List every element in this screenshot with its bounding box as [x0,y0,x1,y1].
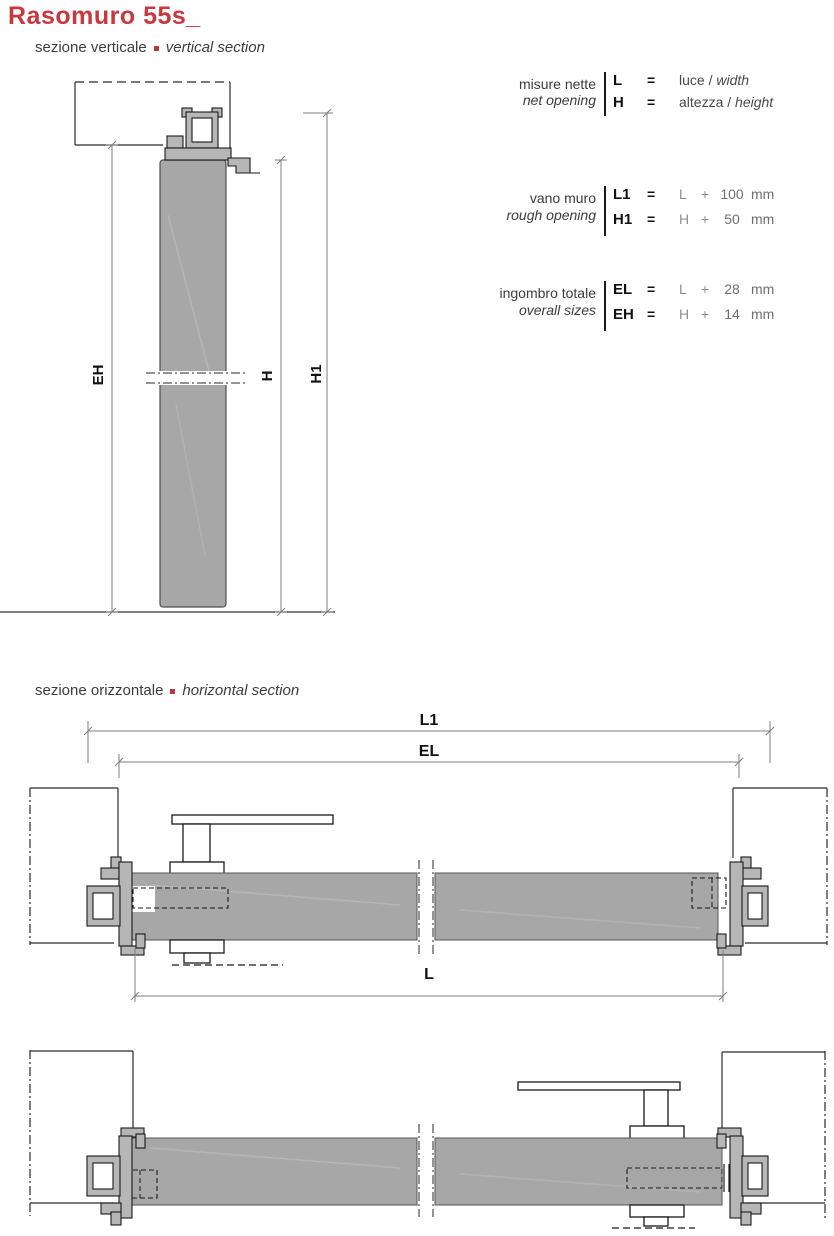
symbol-l1: L1 [613,186,647,203]
legend-rough-opening-label-en: rough opening [430,207,596,224]
door-handle [518,1082,684,1139]
door-handle-back [170,940,283,965]
legend-row-l: L = luce / width [613,72,773,94]
legend-row-h1: H1 = H + 50 mm [613,211,774,236]
legend-row-el: EL = L + 28 mm [613,281,774,306]
legend-row-l1: L1 = L + 100 mm [613,186,774,211]
legend-overall-sizes-label-en: overall sizes [430,302,596,319]
aluminum-jamb-profile-right [717,857,768,955]
horizontal-section-label-it: sezione orizzontale [35,682,163,699]
vertical-section-label-en: vertical section [166,39,265,56]
equals-sign: = [647,306,679,322]
value-l: luce / width [679,72,749,88]
legend-overall-sizes: ingombro totale overall sizes EL = L + 2… [430,281,774,331]
panel-break [146,371,247,385]
dim-label-el: EL [399,743,459,761]
legend-divider [604,72,606,116]
equals-sign: = [647,72,679,88]
legend-rough-opening: vano muro rough opening L1 = L + 100 mm … [430,186,774,236]
door-handle [170,815,333,876]
symbol-h: H [613,94,647,111]
legend-overall-sizes-label-it: ingombro totale [430,285,596,302]
door-panel [130,873,718,940]
red-square-bullet-icon [154,46,159,51]
legend-net-opening: misure nette net opening L = luce / widt… [430,72,773,116]
value-h: altezza / height [679,94,773,110]
symbol-h1: H1 [613,211,647,228]
dim-label-l1: L1 [399,712,459,730]
aluminum-jamb-profile-right [717,1128,768,1225]
symbol-el: EL [613,281,647,298]
legend-divider [604,186,606,236]
horizontal-section-label: sezione orizzontale horizontal section [35,682,299,699]
equals-sign: = [647,94,679,110]
door-panel [125,1138,722,1205]
dim-label-h: H [252,361,282,391]
door-handle-back [612,1205,695,1228]
horizontal-section-label-en: horizontal section [182,682,299,699]
vertical-section-label-it: sezione verticale [35,39,147,56]
legend-net-opening-label-it: misure nette [430,76,596,92]
legend-divider [604,281,606,331]
symbol-eh: EH [613,306,647,323]
datasheet-page: Rasomuro 55s_ sezione verticale vertical… [0,0,834,1236]
page-title: Rasomuro 55s_ [8,2,201,31]
legend-net-opening-label-en: net opening [430,92,596,108]
legend-rough-opening-label-it: vano muro [430,190,596,207]
panel-break [419,1124,433,1217]
symbol-l: L [613,72,647,89]
legend-row-eh: EH = H + 14 mm [613,306,774,331]
legend-row-h: H = altezza / height [613,94,773,116]
panel-break [419,860,433,955]
vertical-section-drawing [0,75,340,640]
equals-sign: = [647,281,679,297]
dim-label-h1: H1 [301,359,331,389]
dim-label-l: L [399,966,459,984]
equals-sign: = [647,186,679,202]
equals-sign: = [647,211,679,227]
horizontal-section-drawing-2 [0,1036,834,1236]
dim-label-eh: EH [83,360,113,390]
red-square-bullet-icon [170,689,175,694]
vertical-section-label: sezione verticale vertical section [35,39,265,56]
